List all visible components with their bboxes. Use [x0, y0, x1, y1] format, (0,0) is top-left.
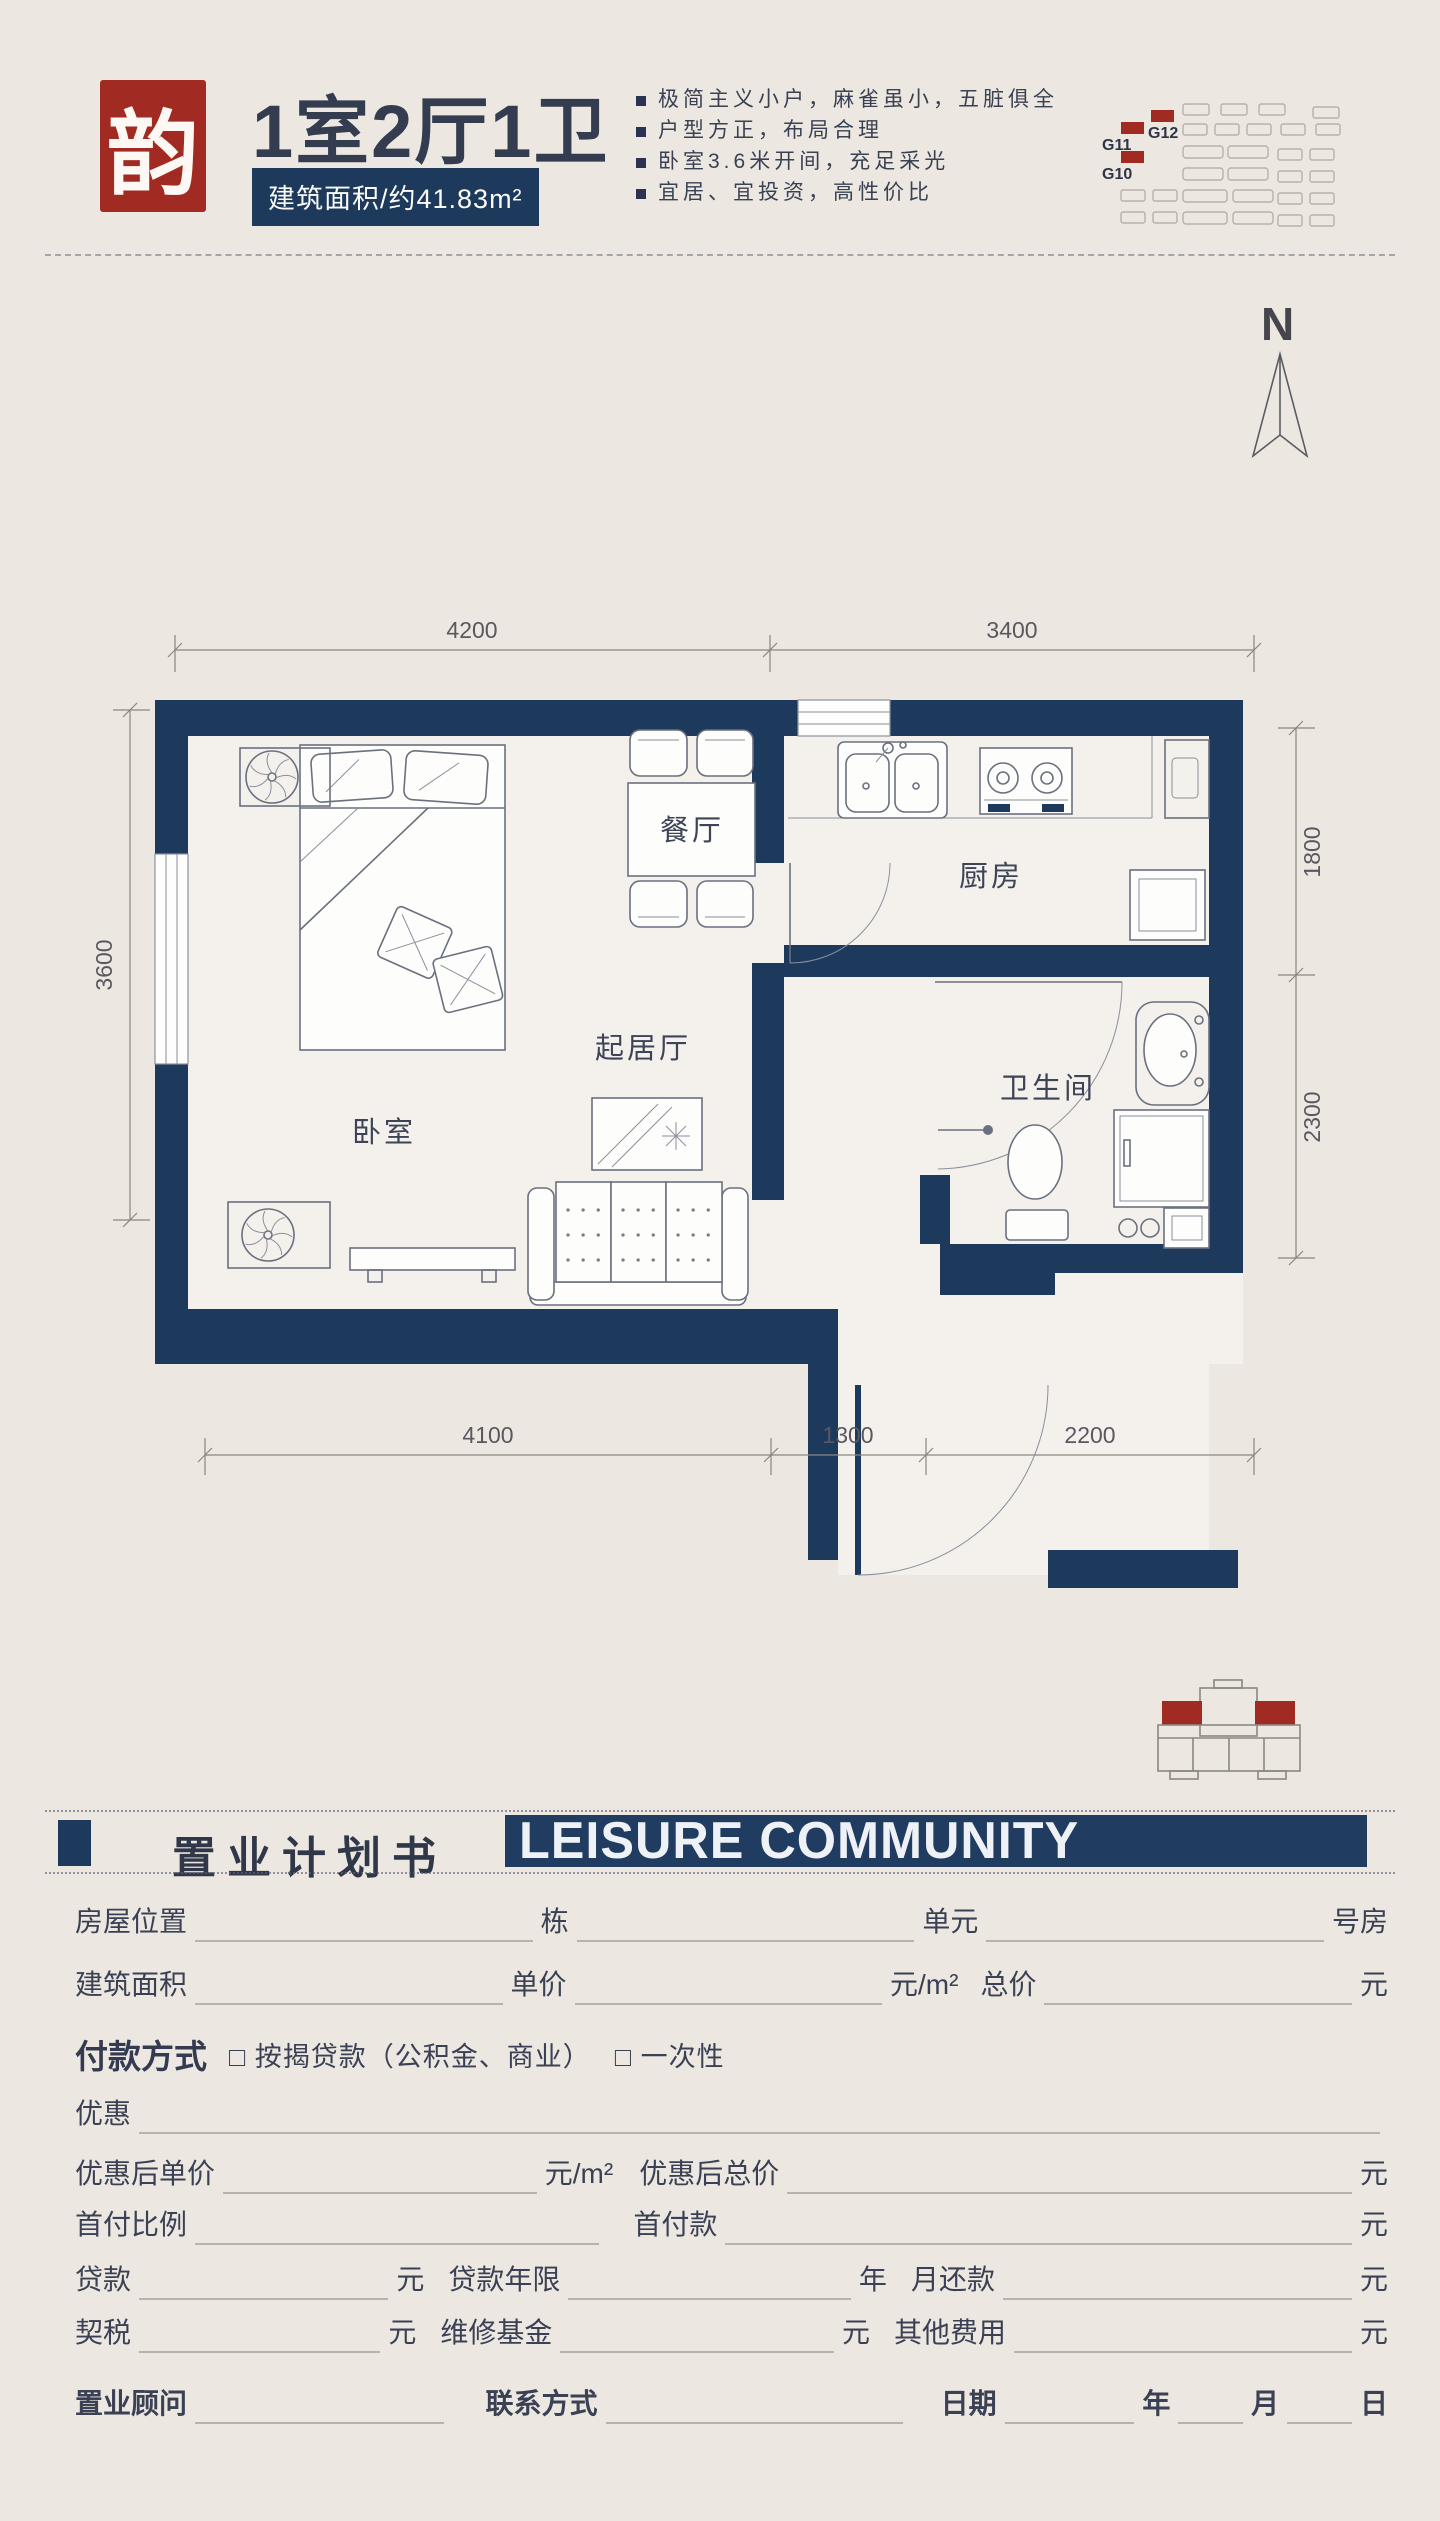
bar-navy-square — [58, 1820, 91, 1866]
sofa — [528, 1182, 748, 1305]
header-divider — [45, 254, 1395, 256]
field-unit: 元 — [1360, 2311, 1388, 2353]
form-row-discount: 优惠 — [75, 2092, 1388, 2134]
payment-method-label: 付款方式 — [75, 2030, 207, 2078]
field-label: 贷款年限 — [448, 2258, 560, 2300]
field-label: 日期 — [941, 2382, 997, 2424]
floor-plan: 卧室 餐厅 起居厅 厨房 卫生间 4200 3400 3600 1800 230… — [0, 590, 1440, 1620]
brand-logo: 韵 — [100, 80, 206, 212]
blank-line — [1014, 2317, 1352, 2353]
dim-top-left: 4200 — [446, 617, 497, 643]
area-badge: 建筑面积/约41.83m² — [252, 168, 539, 226]
window-left — [155, 854, 188, 1064]
form-row-consultant: 置业顾问 联系方式 日期 年 月 日 — [75, 2382, 1388, 2424]
field-unit: 年 — [859, 2258, 887, 2300]
list-item: 户型方正，布局合理 — [636, 119, 1058, 143]
kitchen-sink — [838, 742, 947, 818]
form-row-location: 房屋位置 栋 单元 号房 — [75, 1900, 1388, 1942]
blank-line — [606, 2388, 903, 2424]
room-label-bathroom: 卫生间 — [1000, 1072, 1096, 1105]
field-unit: 元 — [388, 2311, 416, 2353]
fridge — [1130, 870, 1205, 940]
blank-line — [568, 2264, 851, 2300]
field-label: 房屋位置 — [75, 1900, 187, 1942]
field-label: 优惠 — [75, 2092, 131, 2134]
field-label: 月还款 — [911, 2258, 995, 2300]
blank-line — [787, 2158, 1352, 2194]
field-unit: 号房 — [1332, 1900, 1388, 1942]
field-label: 单价 — [511, 1963, 567, 2005]
field-label: 联系方式 — [486, 2382, 598, 2424]
room-label-dining: 餐厅 — [660, 814, 724, 847]
field-label: 契税 — [75, 2311, 131, 2353]
page-title: 1室2厅1卫 — [252, 72, 609, 179]
form-row-payment: 付款方式 □ 按揭贷款（公积金、商业） □ 一次性 — [75, 2030, 1388, 2078]
dim-bottom-middle: 1300 — [822, 1422, 873, 1448]
dim-right-bottom: 2300 — [1299, 1091, 1325, 1142]
bullet-square-icon — [636, 127, 646, 137]
site-plan-map: G12 G11 G10 — [1088, 62, 1380, 240]
plan-book-title-en: LEISURE COMMUNITY — [505, 1815, 1367, 1867]
field-label: 贷款 — [75, 2258, 131, 2300]
field-label: 首付比例 — [75, 2203, 187, 2245]
field-unit: 元 — [842, 2311, 870, 2353]
blank-line — [1044, 1969, 1352, 2005]
field-unit: 元 — [396, 2258, 424, 2300]
field-label: 其他费用 — [894, 2311, 1006, 2353]
blank-line — [195, 1969, 503, 2005]
tv-cabinet — [592, 1098, 702, 1170]
blank-line — [560, 2317, 834, 2353]
dim-top-right: 3400 — [986, 617, 1037, 643]
payment-option-lump-sum: □ 一次性 — [615, 2035, 725, 2078]
field-unit: 元/m² — [545, 2152, 613, 2194]
north-arrow-icon — [1253, 354, 1307, 456]
shower-stall — [1114, 1110, 1209, 1207]
plan-book-title-cn: 置业计划书 — [172, 1822, 447, 1886]
form-row-discounted-price: 优惠后单价 元/m² 优惠后总价 元 — [75, 2152, 1388, 2194]
field-unit: 元/m² — [890, 1963, 958, 2005]
building-label-g10: G10 — [1102, 166, 1132, 183]
field-unit: 栋 — [541, 1900, 569, 1942]
field-unit: 元 — [1360, 2203, 1388, 2245]
bullet-square-icon — [636, 158, 646, 168]
dim-left: 3600 — [91, 939, 117, 990]
stove — [980, 748, 1072, 814]
feature-text: 极简主义小户，麻雀虽小，五脏俱全 — [658, 88, 1058, 112]
blank-line — [1178, 2388, 1243, 2424]
plan-book-title-en-text: LEISURE COMMUNITY — [519, 1811, 1079, 1871]
bullet-square-icon — [636, 96, 646, 106]
dim-right-top: 1800 — [1299, 826, 1325, 877]
room-label-living: 起居厅 — [595, 1032, 691, 1065]
room-label-bedroom: 卧室 — [352, 1116, 416, 1149]
field-label: 优惠后单价 — [75, 2152, 215, 2194]
form-row-downpayment: 首付比例 首付款 元 — [75, 2203, 1388, 2245]
blank-line — [1003, 2264, 1352, 2300]
dim-bottom-right: 2200 — [1064, 1422, 1115, 1448]
blank-line — [725, 2209, 1352, 2245]
field-unit: 元 — [1360, 2152, 1388, 2194]
form-row-loan: 贷款 元 贷款年限 年 月还款 元 — [75, 2258, 1388, 2300]
feature-text: 户型方正，布局合理 — [658, 119, 883, 143]
blank-line — [1005, 2388, 1135, 2424]
blank-line — [195, 2209, 599, 2245]
bullet-square-icon — [636, 189, 646, 199]
feature-list: 极简主义小户，麻雀虽小，五脏俱全 户型方正，布局合理 卧室3.6米开间，充足采光… — [636, 88, 1058, 213]
field-unit: 元 — [1360, 2258, 1388, 2300]
plant-icon — [662, 1122, 690, 1150]
field-label: 建筑面积 — [75, 1963, 187, 2005]
payment-option-mortgage: □ 按揭贷款（公积金、商业） — [229, 2035, 591, 2078]
field-label: 优惠后总价 — [639, 2152, 779, 2194]
feature-text: 宜居、宜投资，高性价比 — [658, 181, 933, 205]
building-footprint-icon — [1140, 1670, 1320, 1785]
blank-line — [223, 2158, 537, 2194]
blank-line — [139, 2317, 380, 2353]
field-label: 维修基金 — [440, 2311, 552, 2353]
logo-character: 韵 — [107, 80, 199, 213]
field-label: 总价 — [980, 1963, 1036, 2005]
form-row-area-price: 建筑面积 单价 元/m² 总价 元 — [75, 1963, 1388, 2005]
blank-line — [195, 2388, 444, 2424]
list-item: 极简主义小户，麻雀虽小，五脏俱全 — [636, 88, 1058, 112]
blank-line — [577, 1906, 915, 1942]
window-top — [798, 700, 890, 736]
north-compass: N — [1225, 298, 1335, 463]
site-buildings-gray — [1121, 104, 1340, 226]
north-label: N — [1261, 298, 1294, 350]
blank-line — [575, 1969, 883, 2005]
feature-text: 卧室3.6米开间，充足采光 — [658, 150, 949, 174]
field-unit: 月 — [1251, 2382, 1279, 2424]
flyer-page: 韵 1室2厅1卫 建筑面积/约41.83m² 极简主义小户，麻雀虽小，五脏俱全 … — [0, 0, 1440, 2521]
blank-line — [1287, 2388, 1352, 2424]
field-unit: 年 — [1142, 2382, 1170, 2424]
blank-line — [139, 2098, 1380, 2134]
field-unit: 元 — [1360, 1963, 1388, 2005]
room-label-kitchen: 厨房 — [959, 860, 1023, 893]
blank-line — [139, 2264, 388, 2300]
list-item: 卧室3.6米开间，充足采光 — [636, 150, 1058, 174]
field-label: 置业顾问 — [75, 2382, 187, 2424]
building-label-g11: G11 — [1102, 137, 1131, 154]
form-row-taxes: 契税 元 维修基金 元 其他费用 元 — [75, 2311, 1388, 2353]
field-label: 首付款 — [633, 2203, 717, 2245]
blank-line — [195, 1906, 533, 1942]
field-unit: 单元 — [922, 1900, 978, 1942]
dim-bottom-left: 4100 — [462, 1422, 513, 1448]
field-unit: 日 — [1360, 2382, 1388, 2424]
blank-line — [986, 1906, 1324, 1942]
building-label-g12: G12 — [1148, 125, 1178, 142]
list-item: 宜居、宜投资，高性价比 — [636, 181, 1058, 205]
bar-dotted-line-bottom — [45, 1872, 1395, 1874]
